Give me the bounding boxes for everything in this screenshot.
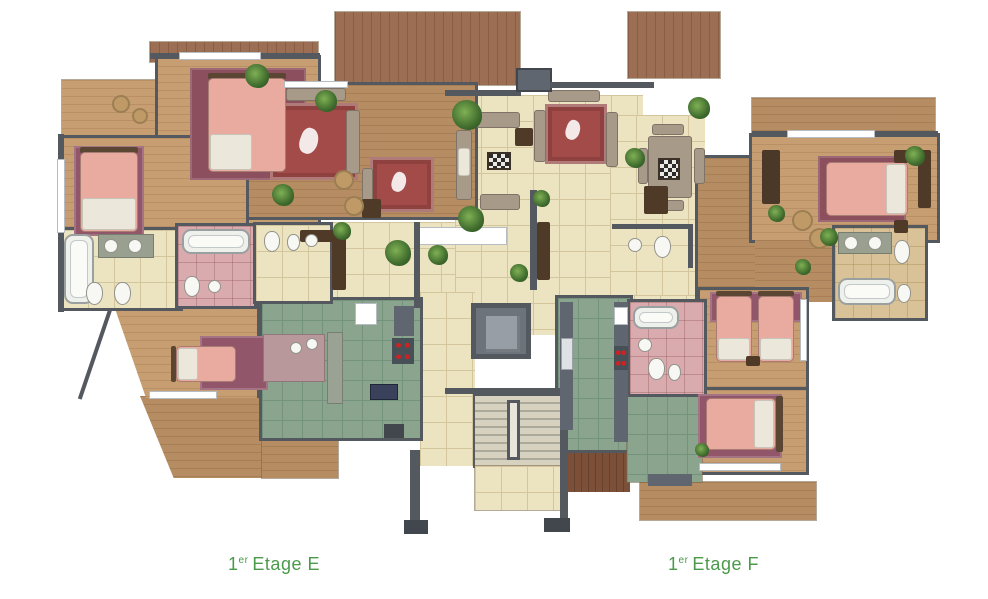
stove-e [392, 338, 414, 364]
console-f [644, 186, 668, 214]
bed-f-master [826, 162, 908, 216]
bed-e3 [176, 346, 236, 382]
sofa-throw [458, 148, 470, 176]
toilet [894, 240, 910, 264]
bathtub-basin [188, 235, 244, 248]
window-console [420, 228, 506, 244]
sink [638, 338, 652, 352]
wall-pillar-foot [404, 520, 428, 534]
label-superscript: er [679, 555, 689, 566]
plant [795, 259, 811, 275]
toilet [264, 231, 280, 252]
bed-pillow [886, 164, 906, 214]
wall-pillar [410, 450, 420, 522]
kitchen-sink [306, 338, 318, 350]
bed-e1 [208, 78, 286, 172]
bed-sheets [82, 198, 136, 230]
sink [208, 280, 221, 293]
console-hall-f [537, 222, 550, 280]
window [150, 392, 216, 398]
plant [272, 184, 294, 206]
door-mat [648, 474, 692, 486]
microwave-e [370, 384, 398, 400]
wall-pillar-foot [544, 518, 570, 532]
kitchen-e-appliance [384, 424, 404, 438]
headboard [776, 396, 783, 452]
nightstand [894, 220, 908, 233]
bed-f-double [706, 398, 776, 450]
plant [533, 190, 550, 207]
plant [452, 100, 482, 130]
stair-rail-slot [510, 403, 517, 457]
label-etage-f: 1erEtage F [668, 554, 759, 575]
bathtub-e2 [182, 229, 250, 254]
terrace-top-center [335, 12, 520, 85]
plant [245, 64, 269, 88]
kitchen-sink [290, 342, 302, 354]
console-hall-e [332, 238, 346, 290]
plant [688, 97, 710, 119]
window [801, 300, 806, 360]
plant [458, 206, 484, 232]
plant [905, 146, 925, 166]
wall [688, 224, 693, 268]
wicker-chair [792, 210, 813, 231]
dining-chair [694, 148, 705, 184]
bed-f-twin-b [758, 296, 794, 362]
bathtub-basin [639, 312, 673, 323]
plant [695, 443, 709, 457]
stair-landing [475, 466, 561, 510]
stair-hall-floor [420, 292, 475, 466]
elevator [471, 303, 531, 359]
balcony-chair [132, 108, 148, 124]
sofa-salon-e1 [346, 110, 360, 174]
window [180, 53, 260, 59]
ottoman [362, 199, 381, 218]
toilet [184, 276, 200, 297]
label-text: Etage E [252, 554, 320, 574]
kitchen-e-island [327, 332, 343, 404]
balcony-bottom-left-2 [262, 438, 338, 478]
bed-pillow [754, 400, 774, 448]
bathtub-f-master [838, 278, 896, 305]
sofa-salon-f-top [548, 90, 600, 102]
bidet [668, 364, 681, 381]
window [788, 131, 874, 137]
entry-door-step [516, 68, 552, 92]
wicker-chair [334, 170, 354, 190]
label-text: Etage F [692, 554, 759, 574]
plant [333, 222, 351, 240]
bidet [897, 284, 911, 303]
plant [768, 205, 785, 222]
sink [305, 234, 318, 247]
label-number: 1 [228, 554, 239, 574]
entry-dark-wood-floor [560, 448, 630, 492]
wall-diagonal [78, 298, 116, 400]
window [700, 464, 780, 470]
toilet [114, 282, 131, 305]
label-superscript: er [239, 555, 249, 566]
bathtub-f [633, 306, 679, 329]
toilet [86, 282, 103, 305]
fridge-f [561, 338, 573, 370]
bathtub-basin [844, 284, 890, 299]
wall [445, 90, 521, 96]
chess-table-foyer [487, 152, 511, 170]
wall [612, 224, 690, 229]
sofa-salon-f-left [534, 110, 546, 162]
bed-sheets [760, 338, 792, 360]
nightstand [746, 356, 760, 366]
plant [820, 228, 838, 246]
terrace-top-center-right [628, 12, 720, 78]
toilet [648, 358, 665, 380]
plant [428, 245, 448, 265]
window [58, 160, 64, 232]
toilet-wc-f [654, 236, 671, 258]
sofa-foyer-top [476, 112, 520, 128]
wall [550, 82, 654, 88]
plant [625, 148, 645, 168]
dining-chair [652, 124, 684, 135]
sink [844, 236, 858, 250]
sink-wc-f [628, 238, 642, 252]
label-number: 1 [668, 554, 679, 574]
wardrobe-f [762, 150, 780, 204]
bed-f-twin-a [716, 296, 752, 362]
page-background: { "labels": { "e": {"number": "1", "sup"… [0, 0, 988, 599]
balcony-chair [112, 95, 130, 113]
kitchen-f-sink-unit [615, 308, 627, 324]
ottoman [515, 128, 533, 146]
sink [104, 239, 118, 253]
sink [128, 239, 142, 253]
wall [445, 388, 567, 394]
kitchen-e-sink-unit [356, 304, 376, 324]
elevator-cabin [486, 316, 520, 352]
bed-e2 [80, 152, 138, 232]
sink [868, 236, 882, 250]
kitchen-e-cabinet [394, 306, 414, 336]
kitchen-f-floor-2 [627, 394, 702, 482]
plant [315, 90, 337, 112]
stove-f [614, 346, 628, 370]
plant [385, 240, 411, 266]
window [285, 82, 347, 87]
balcony-bottom-right [640, 482, 816, 520]
chess-table-f [658, 158, 680, 180]
wall [414, 222, 420, 308]
sofa-foyer-bottom [480, 194, 520, 210]
label-etage-e: 1erEtage E [228, 554, 320, 575]
bed-pillow [178, 348, 198, 380]
plant [510, 264, 528, 282]
floor-plan-image: 1erEtage E 1erEtage F [0, 0, 988, 599]
bidet [287, 234, 300, 251]
wicker-chair [344, 196, 364, 216]
sofa-salon-f-right [606, 112, 618, 167]
bed-sheets [210, 134, 252, 170]
